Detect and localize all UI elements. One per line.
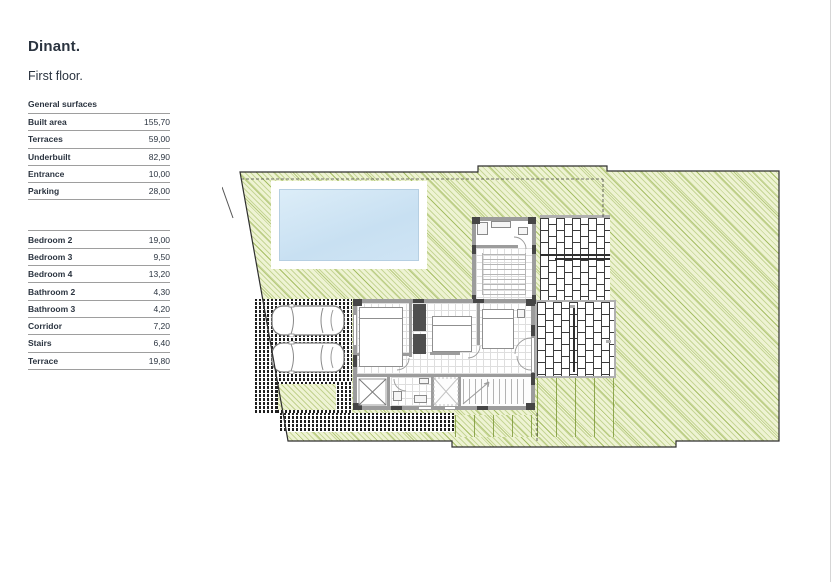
row-label: Stairs (28, 335, 126, 352)
table-row: Stairs6,40 (28, 335, 170, 352)
plot-boundary (240, 166, 779, 447)
general-surfaces-table: Built area155,70 Terraces59,00 Underbuil… (28, 113, 170, 200)
table-row: Entrance10,00 (28, 165, 170, 182)
row-label: Bathroom 2 (28, 283, 126, 300)
row-value: 4,20 (126, 300, 170, 317)
table-row: Corridor7,20 (28, 317, 170, 334)
row-value: 19,80 (126, 352, 170, 369)
table-row: Underbuilt82,90 (28, 148, 170, 165)
general-surfaces-heading: General surfaces (28, 99, 170, 109)
shaft-x-mark (359, 379, 386, 405)
table-row: Bedroom 413,20 (28, 266, 170, 283)
row-value: 4,30 (126, 283, 170, 300)
row-value: 82,90 (116, 148, 170, 165)
row-label: Bedroom 2 (28, 231, 126, 248)
row-label: Parking (28, 183, 116, 200)
row-label: Corridor (28, 317, 126, 334)
row-value: 10,00 (116, 165, 170, 182)
row-label: Bathroom 3 (28, 300, 126, 317)
table-row: Terrace19,80 (28, 352, 170, 369)
page-subtitle: First floor. (28, 69, 170, 83)
row-value: 59,00 (116, 131, 170, 148)
row-value: 155,70 (116, 114, 170, 131)
table-row: Terraces59,00 (28, 131, 170, 148)
table-row: Bedroom 39,50 (28, 248, 170, 265)
row-label: Bedroom 4 (28, 266, 126, 283)
row-value: 28,00 (116, 183, 170, 200)
table-row: Built area155,70 (28, 114, 170, 131)
table-row: Bathroom 24,30 (28, 283, 170, 300)
row-label: Built area (28, 114, 116, 131)
projection-dashed-line (241, 179, 603, 441)
row-value: 13,20 (126, 266, 170, 283)
table-row: Bathroom 34,20 (28, 300, 170, 317)
row-value: 7,20 (126, 317, 170, 334)
room-surfaces-table: Bedroom 219,00 Bedroom 39,50 Bedroom 413… (28, 230, 170, 369)
void-x-mark (434, 378, 458, 405)
page-edge-divider (830, 0, 831, 582)
floor-plan (222, 165, 780, 450)
row-label: Terrace (28, 352, 126, 369)
page-title: Dinant. (28, 38, 170, 55)
row-value: 9,50 (126, 248, 170, 265)
row-label: Entrance (28, 165, 116, 182)
plan-linework (222, 165, 780, 450)
row-label: Bedroom 3 (28, 248, 126, 265)
table-row: Bedroom 219,00 (28, 231, 170, 248)
row-label: Underbuilt (28, 148, 116, 165)
table-row: Parking28,00 (28, 183, 170, 200)
row-value: 6,40 (126, 335, 170, 352)
door-swing-arcs (394, 237, 531, 391)
row-value: 19,00 (126, 231, 170, 248)
boundary-tick (222, 187, 233, 218)
info-panel: Dinant. First floor. General surfaces Bu… (28, 38, 170, 370)
row-label: Terraces (28, 131, 116, 148)
stairs-arrow (463, 382, 489, 404)
